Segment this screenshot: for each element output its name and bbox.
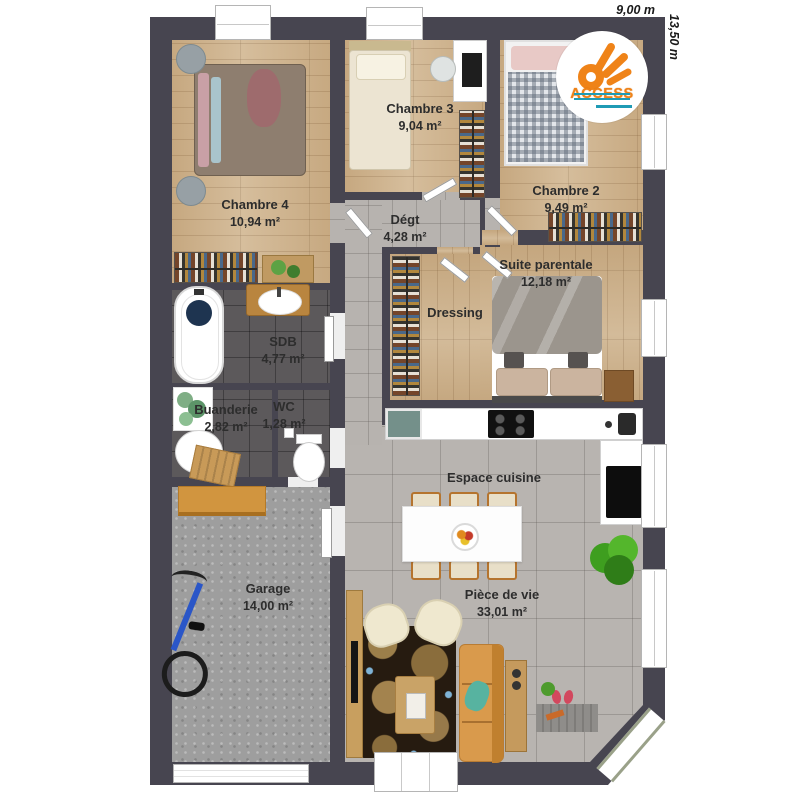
vanity-icon bbox=[246, 284, 310, 316]
logo-accent-line bbox=[574, 98, 630, 100]
french-window-living bbox=[374, 752, 458, 792]
room-label-piece-de-vie: Pièce de vie 33,01 m² bbox=[465, 586, 539, 622]
door-leaf-garage bbox=[321, 508, 332, 558]
pillow-icon bbox=[550, 368, 602, 396]
tv-icon bbox=[351, 641, 358, 703]
room-label-garage: Garage 14,00 m² bbox=[243, 580, 293, 616]
cooktop-icon bbox=[488, 410, 534, 438]
knob-icon bbox=[605, 421, 612, 428]
opening-chambre4 bbox=[330, 203, 345, 243]
bench-plant-icon bbox=[262, 255, 314, 283]
room-label-degt: Dégt 4,28 m² bbox=[383, 211, 426, 247]
room-area: 33,01 m² bbox=[465, 604, 539, 622]
room-label-sdb: SDB 4,77 m² bbox=[261, 333, 304, 369]
vase-icon bbox=[512, 681, 521, 690]
stool-icon bbox=[430, 56, 456, 82]
bedside-lamp-icon bbox=[176, 44, 206, 74]
workbench-icon bbox=[178, 486, 266, 516]
logo-accent-line bbox=[574, 93, 630, 95]
room-name: Dégt bbox=[383, 211, 426, 229]
room-area: 10,94 m² bbox=[221, 214, 288, 232]
room-name: Garage bbox=[243, 580, 293, 598]
nightstand-icon bbox=[604, 370, 634, 402]
room-name: Chambre 4 bbox=[221, 196, 288, 214]
plant-icon bbox=[271, 260, 286, 275]
door-leaf-sdb bbox=[324, 316, 334, 362]
bike-seat-icon bbox=[188, 621, 205, 631]
room-area: 2,82 m² bbox=[194, 419, 258, 437]
plant-icon bbox=[541, 682, 555, 696]
room-area: 4,77 m² bbox=[261, 351, 304, 369]
vase-icon bbox=[512, 669, 521, 678]
throw-blanket-icon bbox=[247, 69, 281, 127]
garage-door bbox=[173, 764, 309, 783]
room-name: SDB bbox=[261, 333, 304, 351]
laundry-icon bbox=[179, 412, 193, 426]
window-chambre3 bbox=[366, 7, 423, 40]
tv-cabinet-icon bbox=[346, 590, 363, 758]
side-table-icon bbox=[505, 660, 527, 752]
doormat-icon bbox=[536, 704, 598, 732]
room-area: 4,28 m² bbox=[383, 229, 426, 247]
wall-central-vertical bbox=[330, 40, 345, 762]
coffee-table-icon bbox=[395, 676, 435, 734]
pillow-icon bbox=[211, 77, 221, 163]
handlebar-icon bbox=[170, 568, 208, 591]
wardrobe-rack-icon bbox=[459, 110, 485, 198]
bike-frame-icon bbox=[171, 582, 204, 651]
pillow-icon bbox=[568, 352, 588, 368]
headboard-icon bbox=[492, 396, 602, 403]
window-suite bbox=[641, 299, 667, 357]
window-chambre4 bbox=[215, 5, 271, 40]
access-logo: ACCESS bbox=[556, 31, 648, 123]
room-name: Chambre 3 bbox=[386, 100, 453, 118]
chair-icon bbox=[487, 560, 517, 580]
window-kitchen bbox=[641, 444, 667, 528]
laptop-icon bbox=[462, 53, 482, 87]
wardrobe-rack-icon bbox=[174, 252, 258, 283]
room-area: 1,28 m² bbox=[262, 416, 305, 434]
toilet-icon bbox=[293, 442, 325, 482]
room-label-chambre2: Chambre 2 9,49 m² bbox=[532, 182, 599, 218]
double-bed-icon bbox=[492, 276, 602, 402]
dining-table-icon bbox=[402, 506, 522, 562]
room-label-buanderie: Buanderie 2,82 m² bbox=[194, 401, 258, 437]
sofa-seam bbox=[462, 721, 492, 723]
room-name: Espace cuisine bbox=[447, 469, 541, 487]
room-label-chambre4: Chambre 4 10,94 m² bbox=[221, 196, 288, 232]
room-name: Buanderie bbox=[194, 401, 258, 419]
kitchen-sink-icon bbox=[386, 409, 422, 439]
opening-wc bbox=[330, 428, 345, 468]
dimension-height: 13,50 m bbox=[667, 14, 681, 60]
room-label-wc: WC 1,28 m² bbox=[262, 398, 305, 434]
window-living bbox=[641, 569, 667, 668]
faucet-icon bbox=[194, 289, 204, 295]
chair-icon bbox=[449, 560, 479, 580]
room-area: 9,04 m² bbox=[386, 118, 453, 136]
plant-icon bbox=[287, 265, 300, 278]
sofa-backrest bbox=[492, 645, 503, 763]
bath-pillow-icon bbox=[186, 300, 212, 326]
room-label-chambre3: Chambre 3 9,04 m² bbox=[386, 100, 453, 136]
coffee-machine-icon bbox=[618, 413, 636, 435]
ok-hand-icon bbox=[556, 31, 648, 123]
room-area: 9,49 m² bbox=[532, 200, 599, 218]
sofa-icon bbox=[459, 644, 504, 762]
pillow-icon bbox=[504, 352, 524, 368]
room-label-dressing: Dressing bbox=[427, 304, 483, 322]
dimension-width: 9,00 m bbox=[570, 3, 655, 17]
wardrobe-rack-icon bbox=[392, 256, 420, 396]
double-bed-icon bbox=[194, 64, 306, 176]
pillow-icon bbox=[198, 73, 209, 167]
pillow-icon bbox=[496, 368, 548, 396]
room-label-suite: Suite parentale 12,18 m² bbox=[499, 256, 592, 292]
room-name: Chambre 2 bbox=[532, 182, 599, 200]
floor-plan-page: Chambre 4 10,94 m² Chambre 3 9,04 m² Cha… bbox=[0, 0, 800, 800]
plant-leaf bbox=[604, 555, 634, 585]
room-name: Pièce de vie bbox=[465, 586, 539, 604]
fruit-bowl-icon bbox=[451, 523, 479, 551]
room-name: WC bbox=[262, 398, 305, 416]
desk-icon bbox=[453, 40, 487, 102]
chair-icon bbox=[411, 560, 441, 580]
bike-wheel-icon bbox=[159, 648, 211, 700]
room-name: Dressing bbox=[427, 304, 483, 322]
opening-garage-living bbox=[330, 506, 345, 556]
room-area: 12,18 m² bbox=[499, 274, 592, 292]
wall-dressing-left bbox=[382, 247, 390, 425]
magazine-icon bbox=[406, 693, 426, 719]
floor-corridor bbox=[345, 200, 382, 445]
bathtub-icon bbox=[174, 286, 224, 384]
room-area: 14,00 m² bbox=[243, 598, 293, 616]
pillow-icon bbox=[356, 54, 406, 80]
opening-dressing bbox=[437, 247, 473, 254]
logo-tagline-bar bbox=[596, 105, 632, 108]
slipper-icon bbox=[546, 709, 565, 720]
faucet-icon bbox=[277, 287, 281, 297]
bedside-lamp-icon bbox=[176, 176, 206, 206]
fridge-icon bbox=[606, 466, 642, 518]
room-label-cuisine: Espace cuisine bbox=[447, 469, 541, 487]
room-name: Suite parentale bbox=[499, 256, 592, 274]
plant-icon bbox=[588, 533, 640, 585]
